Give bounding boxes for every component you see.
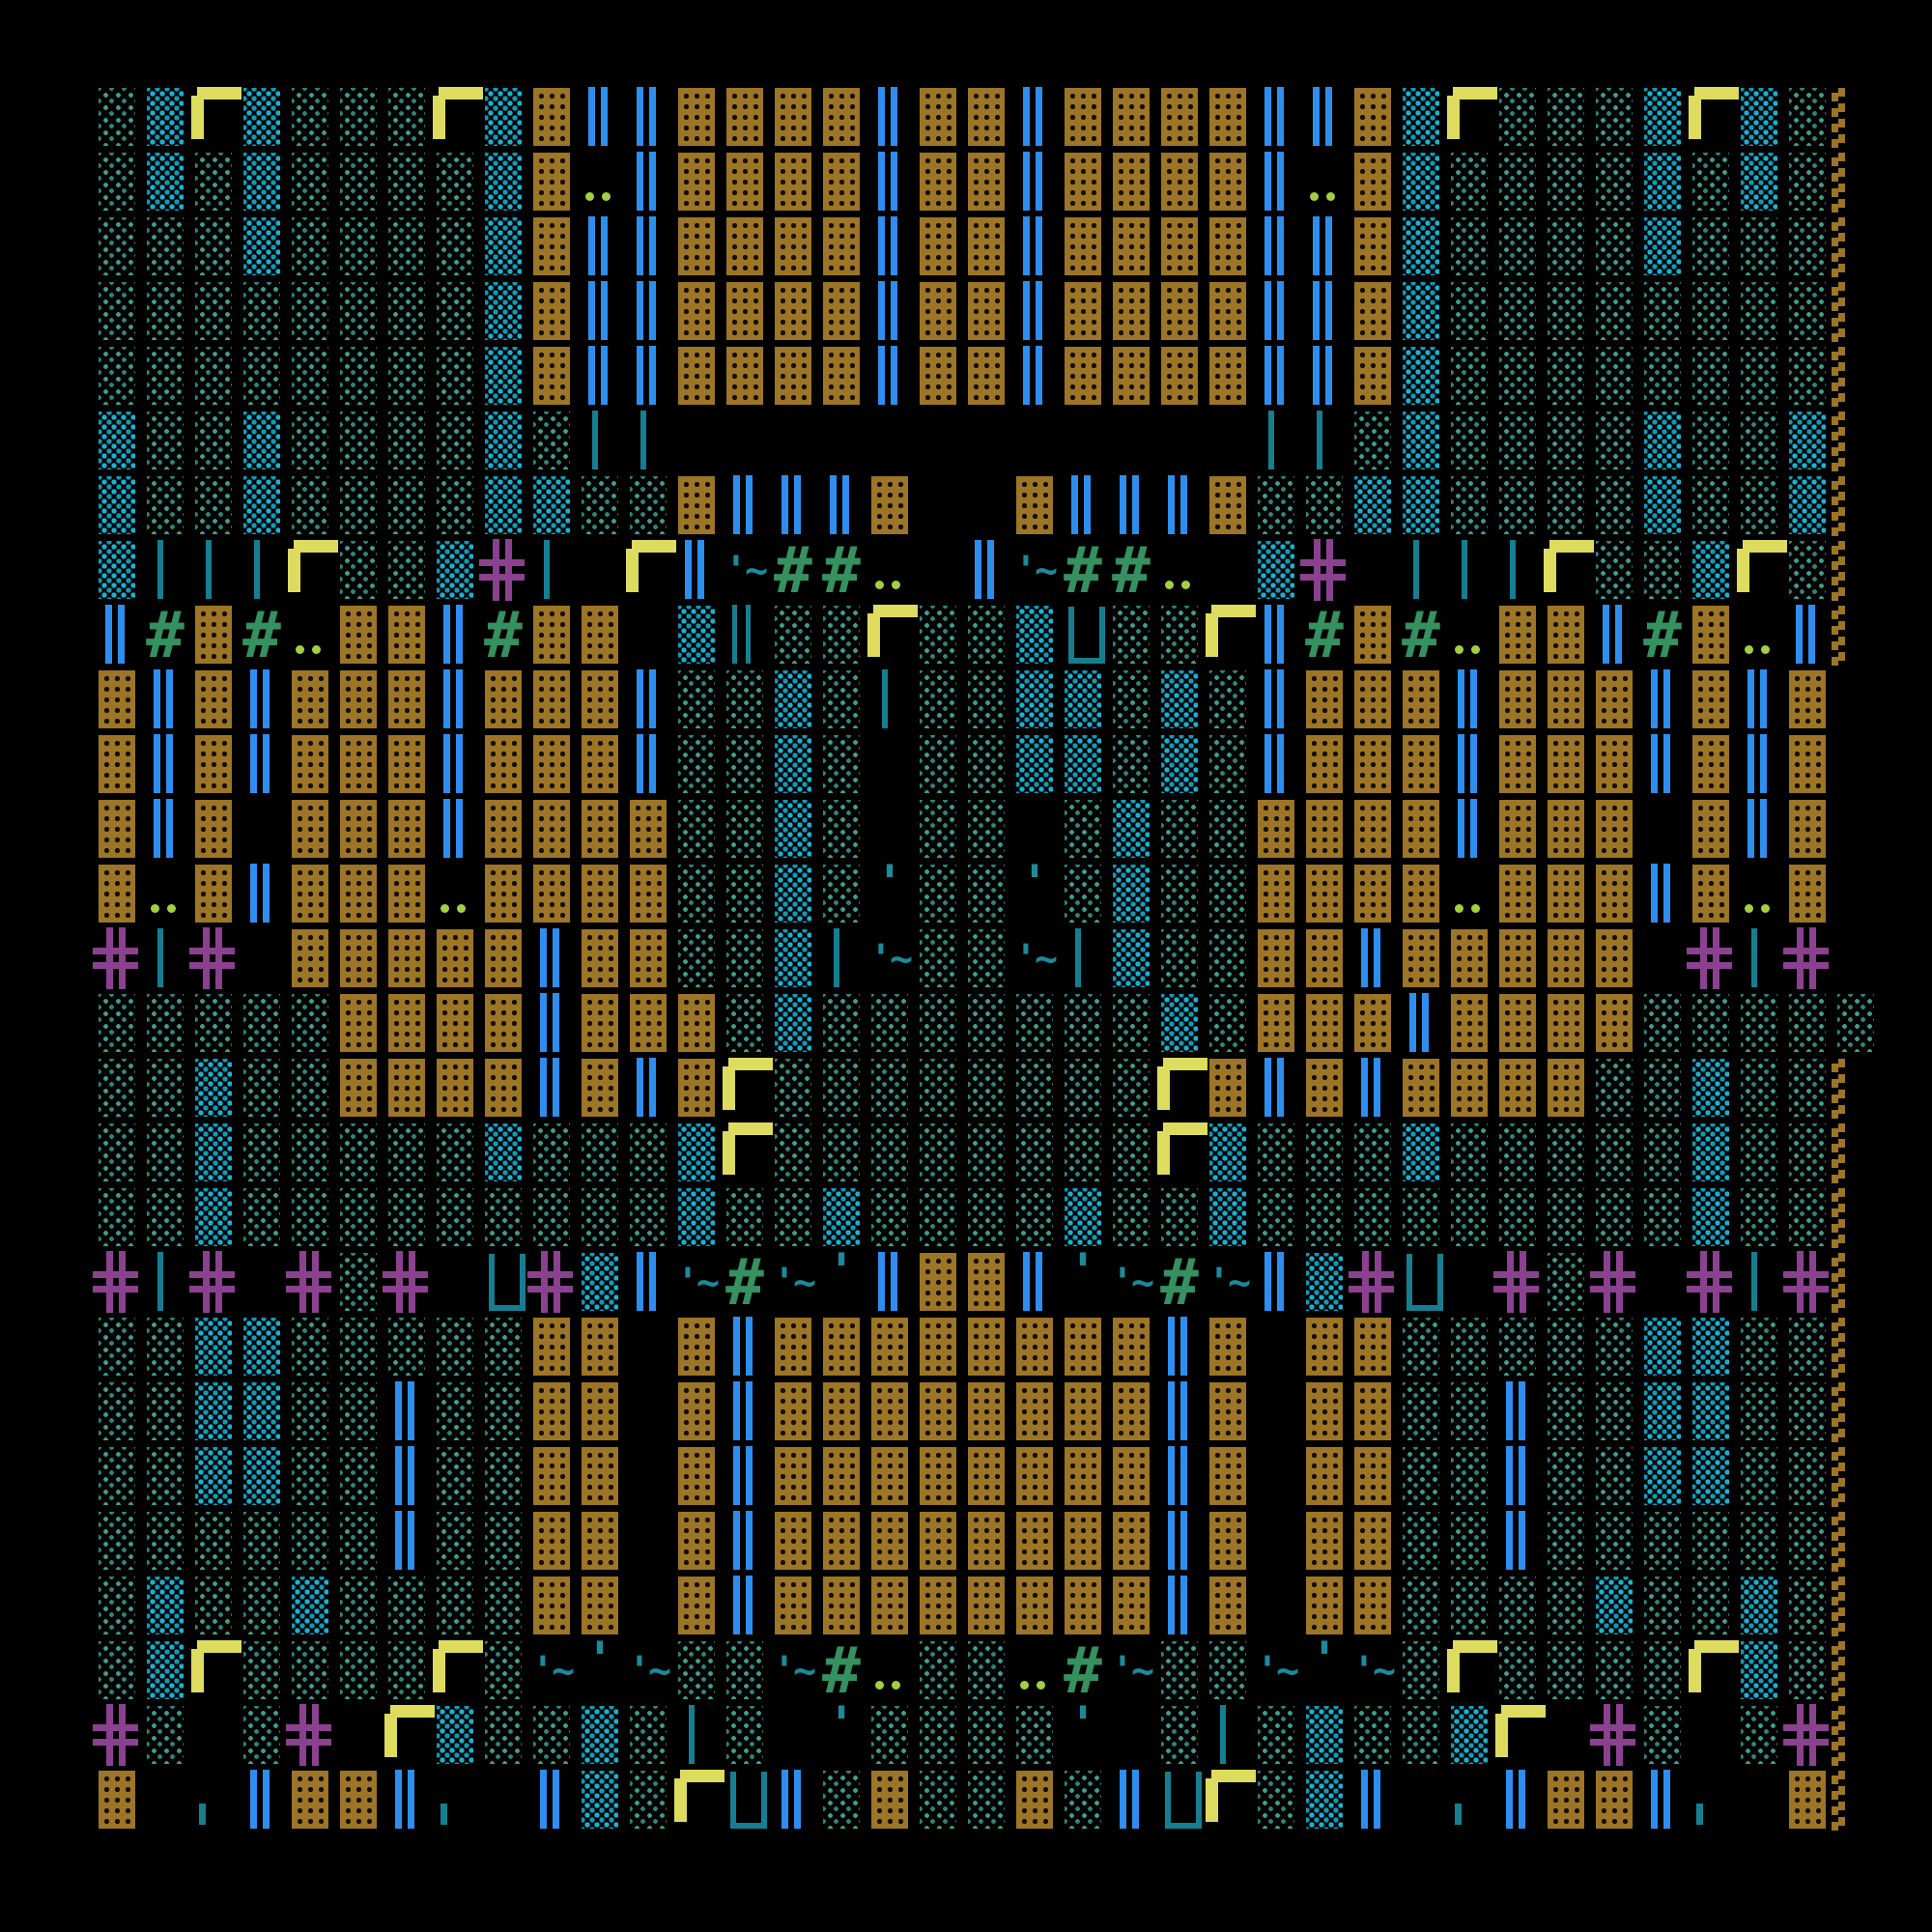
teal-dot-block bbox=[1397, 1574, 1445, 1638]
brown-dot-block bbox=[334, 797, 383, 862]
teal-dot-block-shape bbox=[1113, 670, 1150, 728]
yellow-corner-glyph bbox=[624, 538, 672, 603]
teal-dot-block bbox=[334, 1121, 383, 1185]
yellow-corner-glyph bbox=[721, 1121, 769, 1185]
brown-dot-block-shape bbox=[968, 1447, 1005, 1505]
brown-dot-block-shape bbox=[1354, 800, 1391, 858]
hash-glyph-shape: # bbox=[479, 603, 527, 668]
teal-dot-block bbox=[576, 1185, 624, 1250]
teal-bracket-glyph bbox=[1155, 1768, 1204, 1833]
blue-double-bar-glyph bbox=[1493, 1379, 1542, 1444]
blue-double-bar-glyph-shape bbox=[1349, 928, 1397, 987]
cyan-dot-block bbox=[141, 1638, 189, 1703]
brown-dot-block-shape bbox=[533, 1577, 570, 1634]
teal-dot-block bbox=[1735, 409, 1783, 473]
brown-dot-block-shape bbox=[1209, 1382, 1246, 1440]
cyan-dot-block-shape bbox=[1016, 735, 1053, 793]
cyan-dot-block bbox=[1687, 1185, 1735, 1250]
brown-dot-block bbox=[479, 668, 527, 732]
teal-bar-glyph-shape bbox=[817, 928, 866, 987]
brown-dot-block-shape bbox=[485, 800, 522, 858]
teal-dot-block-shape bbox=[99, 1188, 135, 1246]
brown-dot-block-shape bbox=[1692, 606, 1729, 664]
brown-dot-block bbox=[1107, 279, 1155, 344]
brown-dot-block-shape bbox=[968, 217, 1005, 275]
brown-dot-block bbox=[914, 1574, 962, 1638]
brown-dot-block bbox=[1349, 1509, 1397, 1574]
purple-cross-glyph bbox=[1783, 926, 1832, 991]
brown-dot-block-shape bbox=[1065, 282, 1101, 340]
teal-dot-block bbox=[769, 603, 817, 668]
brown-dot-block-shape bbox=[99, 865, 135, 923]
blue-double-bar-glyph-shape bbox=[672, 540, 721, 599]
cyan-dot-block-shape bbox=[582, 1253, 618, 1311]
blue-double-bar-glyph-shape bbox=[1735, 669, 1783, 728]
brown-dot-block-shape bbox=[1596, 735, 1633, 793]
brown-dot-block-shape bbox=[582, 865, 618, 923]
teal-dot-block-shape bbox=[99, 1382, 135, 1440]
brown-dot-block bbox=[286, 1768, 334, 1833]
teal-dot-block bbox=[334, 1444, 383, 1509]
hash-glyph: # bbox=[1300, 603, 1349, 668]
brown-dot-block bbox=[527, 1509, 576, 1574]
double-dot-glyph bbox=[1735, 603, 1783, 668]
teal-dot-block-shape bbox=[1741, 1188, 1777, 1246]
blue-double-bar-glyph bbox=[1735, 732, 1783, 797]
blue-double-bar-glyph-shape bbox=[431, 669, 479, 728]
brown-dot-block bbox=[1542, 1768, 1590, 1833]
teal-dot-block-shape bbox=[582, 1123, 618, 1181]
teal-dot-block-shape bbox=[1741, 347, 1777, 405]
brown-dot-block bbox=[93, 1768, 141, 1833]
brown-dot-block-shape bbox=[1306, 800, 1343, 858]
teal-dot-block bbox=[334, 473, 383, 538]
teal-dot-block-shape bbox=[292, 153, 328, 211]
hash-glyph-shape: # bbox=[1638, 603, 1687, 668]
hash-glyph-shape: # bbox=[1155, 1250, 1204, 1315]
brown-dot-block-shape bbox=[823, 1577, 860, 1634]
teal-dot-block-shape bbox=[99, 282, 135, 340]
blue-double-bar-glyph bbox=[1397, 991, 1445, 1056]
cyan-dot-block-shape bbox=[195, 1382, 232, 1440]
brown-dot-block-shape bbox=[871, 1382, 908, 1440]
brown-dot-block bbox=[1107, 1509, 1155, 1574]
teal-dot-block-shape bbox=[968, 865, 1005, 923]
cyan-dot-block-shape bbox=[1451, 1706, 1488, 1764]
blue-double-bar-glyph-shape bbox=[1155, 475, 1204, 534]
brown-serration-glyph-shape bbox=[1832, 1704, 1845, 1766]
brown-dot-block bbox=[576, 1056, 624, 1121]
brown-dot-block bbox=[527, 668, 576, 732]
teal-dot-block-shape bbox=[292, 476, 328, 534]
teal-dot-block bbox=[1542, 279, 1590, 344]
brown-dot-block bbox=[1542, 732, 1590, 797]
teal-dot-block-shape bbox=[1644, 282, 1681, 340]
apostrophe-tilde-glyph-shape: '~ bbox=[769, 1638, 817, 1703]
teal-bar-glyph bbox=[866, 668, 914, 732]
cyan-dot-block-shape bbox=[1692, 1382, 1729, 1440]
teal-dot-block-shape bbox=[437, 347, 473, 405]
teal-dot-block bbox=[721, 926, 769, 991]
teal-dot-block bbox=[1252, 1768, 1300, 1833]
blue-double-bar-glyph-shape bbox=[721, 1511, 769, 1570]
teal-dot-block-shape bbox=[1692, 153, 1729, 211]
cyan-dot-block bbox=[769, 926, 817, 991]
blue-double-bar-glyph-shape bbox=[1010, 216, 1059, 275]
teal-dot-block bbox=[238, 1185, 286, 1250]
teal-dot-block bbox=[1300, 473, 1349, 538]
teal-dot-block-shape bbox=[920, 670, 956, 728]
apostrophe-tilde-glyph-shape: '~ bbox=[769, 1250, 817, 1315]
teal-dot-block-shape bbox=[968, 1641, 1005, 1699]
teal-dot-block bbox=[93, 1638, 141, 1703]
cyan-dot-block-shape bbox=[195, 1059, 232, 1117]
teal-dot-block bbox=[721, 668, 769, 732]
teal-dot-block-shape bbox=[1692, 347, 1729, 405]
blue-double-bar-glyph bbox=[1059, 473, 1107, 538]
cyan-dot-block-shape bbox=[775, 994, 811, 1052]
cyan-dot-block-shape bbox=[243, 217, 280, 275]
brown-dot-block bbox=[769, 85, 817, 150]
teal-dot-block-shape bbox=[243, 1059, 280, 1117]
brown-dot-block bbox=[914, 1250, 962, 1315]
teal-dot-block bbox=[1687, 279, 1735, 344]
teal-dot-block-shape bbox=[99, 1123, 135, 1181]
brown-serration-glyph bbox=[1832, 1315, 1880, 1379]
blue-double-bar-glyph bbox=[721, 1574, 769, 1638]
teal-dot-block-shape bbox=[1548, 88, 1584, 146]
brown-dot-block bbox=[286, 732, 334, 797]
teal-dot-block bbox=[624, 1121, 672, 1185]
teal-bar-glyph-shape bbox=[141, 1252, 189, 1311]
teal-dot-block bbox=[334, 344, 383, 409]
blue-double-bar-glyph-shape bbox=[769, 1770, 817, 1829]
brown-dot-block-shape bbox=[485, 1059, 522, 1117]
cyan-dot-block-shape bbox=[485, 153, 522, 211]
cyan-dot-block bbox=[769, 797, 817, 862]
teal-dot-block-shape bbox=[823, 1771, 860, 1829]
brown-dot-block-shape bbox=[775, 1382, 811, 1440]
cyan-dot-block-shape bbox=[243, 1382, 280, 1440]
teal-dot-block bbox=[431, 279, 479, 344]
cyan-dot-block bbox=[93, 473, 141, 538]
teal-dot-block bbox=[286, 1056, 334, 1121]
teal-dot-block bbox=[962, 862, 1010, 926]
brown-dot-block bbox=[914, 344, 962, 409]
teal-dot-block-shape bbox=[1789, 1447, 1826, 1505]
blue-double-bar-glyph bbox=[624, 150, 672, 214]
teal-dot-block bbox=[866, 1056, 914, 1121]
teal-dot-block bbox=[1735, 1379, 1783, 1444]
brown-dot-block bbox=[866, 1768, 914, 1833]
teal-dot-block bbox=[238, 1574, 286, 1638]
brown-dot-block bbox=[962, 1574, 1010, 1638]
teal-dot-block-shape bbox=[1596, 1447, 1633, 1505]
brown-dot-block-shape bbox=[1161, 88, 1198, 146]
double-dot-glyph-shape bbox=[866, 1638, 914, 1703]
teal-dot-block-shape bbox=[1161, 1188, 1198, 1246]
blue-double-bar-glyph-shape bbox=[1349, 1058, 1397, 1117]
teal-bar-glyph bbox=[1735, 1250, 1783, 1315]
teal-dot-block bbox=[1445, 1574, 1493, 1638]
purple-cross-glyph-shape bbox=[1590, 1703, 1638, 1768]
hash-glyph-shape: # bbox=[1107, 538, 1155, 603]
hash-glyph-shape: # bbox=[769, 538, 817, 603]
teal-dot-block bbox=[1493, 1185, 1542, 1250]
blue-double-bar-glyph bbox=[238, 732, 286, 797]
cyan-dot-block-shape bbox=[1741, 153, 1777, 211]
teal-dot-block bbox=[1107, 991, 1155, 1056]
cyan-dot-block bbox=[1397, 85, 1445, 150]
teal-dot-block-shape bbox=[1306, 476, 1343, 534]
teal-dot-block-shape bbox=[1258, 1188, 1294, 1246]
brown-dot-block-shape bbox=[99, 670, 135, 728]
teal-dot-block bbox=[672, 797, 721, 862]
purple-cross-glyph bbox=[189, 1250, 238, 1315]
blue-double-bar-glyph-shape bbox=[817, 475, 866, 534]
teal-dot-block bbox=[1155, 797, 1204, 862]
teal-dot-block-shape bbox=[678, 929, 715, 987]
teal-dot-block-shape bbox=[920, 800, 956, 858]
teal-dot-block-shape bbox=[678, 670, 715, 728]
teal-dot-block bbox=[1493, 279, 1542, 344]
cyan-dot-block-shape bbox=[1161, 670, 1198, 728]
teal-dot-block-shape bbox=[533, 1188, 570, 1246]
blue-double-bar-glyph-shape bbox=[141, 669, 189, 728]
teal-dot-block-shape bbox=[195, 153, 232, 211]
teal-dot-block bbox=[1155, 603, 1204, 668]
brown-dot-block bbox=[866, 1379, 914, 1444]
teal-bar-glyph-shape bbox=[1059, 928, 1107, 987]
teal-bar-glyph-shape bbox=[141, 928, 189, 987]
teal-dot-block bbox=[189, 214, 238, 279]
teal-dot-block-shape bbox=[147, 476, 184, 534]
brown-serration-glyph bbox=[1832, 85, 1880, 150]
brown-dot-block-shape bbox=[1161, 153, 1198, 211]
brown-dot-block bbox=[1445, 1056, 1493, 1121]
teal-dot-block-shape bbox=[147, 1059, 184, 1117]
blue-double-bar-glyph-shape bbox=[1155, 1511, 1204, 1570]
teal-dot-block-shape bbox=[726, 1641, 763, 1699]
cyan-dot-block-shape bbox=[99, 412, 135, 469]
teal-dot-block-shape bbox=[1161, 1641, 1198, 1699]
teal-dot-block-shape bbox=[1692, 412, 1729, 469]
teal-dot-block-shape bbox=[920, 1123, 956, 1181]
brown-dot-block bbox=[962, 1379, 1010, 1444]
teal-dot-block bbox=[527, 1121, 576, 1185]
blue-double-bar-glyph-shape bbox=[866, 1252, 914, 1311]
blue-double-bar-glyph-shape bbox=[866, 281, 914, 340]
brown-dot-block-shape bbox=[582, 606, 618, 664]
brown-dot-block bbox=[1204, 1315, 1252, 1379]
brown-dot-block bbox=[383, 991, 431, 1056]
teal-dot-block-shape bbox=[775, 1059, 811, 1117]
brown-dot-block-shape bbox=[292, 929, 328, 987]
teal-dot-block-shape bbox=[195, 1577, 232, 1634]
brown-dot-block-shape bbox=[678, 1512, 715, 1570]
cyan-dot-block bbox=[1107, 926, 1155, 991]
teal-dot-block bbox=[1638, 1703, 1687, 1768]
teal-dot-block bbox=[1397, 1703, 1445, 1768]
teal-dot-block-shape bbox=[243, 994, 280, 1052]
cyan-dot-block-shape bbox=[1403, 412, 1439, 469]
brown-dot-block-shape bbox=[678, 1059, 715, 1117]
brown-dot-block-shape bbox=[726, 282, 763, 340]
blue-double-bar-glyph-shape bbox=[238, 864, 286, 923]
brown-dot-block bbox=[1542, 862, 1590, 926]
yellow-corner-glyph bbox=[1687, 1638, 1735, 1703]
teal-dot-block-shape bbox=[678, 735, 715, 793]
cyan-dot-block bbox=[238, 85, 286, 150]
hash-glyph-shape: # bbox=[817, 1638, 866, 1703]
teal-dot-block-shape bbox=[920, 994, 956, 1052]
brown-dot-block-shape bbox=[678, 1447, 715, 1505]
cyan-dot-block bbox=[1687, 1379, 1735, 1444]
brown-dot-block-shape bbox=[582, 670, 618, 728]
hash-glyph: # bbox=[721, 1250, 769, 1315]
brown-dot-block bbox=[431, 1056, 479, 1121]
brown-dot-block bbox=[1590, 1768, 1638, 1833]
purple-cross-glyph-shape bbox=[1783, 1703, 1832, 1768]
brown-dot-block-shape bbox=[582, 929, 618, 987]
brown-dot-block-shape bbox=[195, 865, 232, 923]
double-dot-glyph-shape bbox=[141, 862, 189, 926]
teal-dot-block bbox=[721, 862, 769, 926]
teal-dot-block bbox=[1735, 1185, 1783, 1250]
teal-dot-block-shape bbox=[968, 1123, 1005, 1181]
apostrophe-tilde-glyph: '~ bbox=[624, 1638, 672, 1703]
brown-dot-block bbox=[962, 1250, 1010, 1315]
hash-glyph: # bbox=[817, 1638, 866, 1703]
yellow-corner-glyph-shape bbox=[286, 538, 334, 603]
blue-double-bar-glyph-shape bbox=[1252, 734, 1300, 793]
teal-dot-block-shape bbox=[1499, 1318, 1536, 1376]
cyan-dot-block bbox=[1397, 344, 1445, 409]
teal-dot-block bbox=[1107, 1056, 1155, 1121]
brown-dot-block-shape bbox=[630, 929, 667, 987]
apostrophe-tilde-glyph: '~ bbox=[1107, 1250, 1155, 1315]
brown-dot-block-shape bbox=[1499, 670, 1536, 728]
cyan-dot-block bbox=[189, 1121, 238, 1185]
double-dot-glyph bbox=[1300, 150, 1349, 214]
hash-glyph-shape: # bbox=[817, 538, 866, 603]
teal-dot-block bbox=[1638, 1056, 1687, 1121]
brown-dot-block bbox=[527, 1315, 576, 1379]
teal-dot-block bbox=[914, 862, 962, 926]
teal-dot-block-shape bbox=[388, 1577, 425, 1634]
teal-dot-block bbox=[1397, 1444, 1445, 1509]
blue-double-bar-glyph bbox=[141, 668, 189, 732]
blue-double-bar-glyph-shape bbox=[1010, 346, 1059, 405]
brown-dot-block-shape bbox=[340, 800, 377, 858]
teal-dot-block bbox=[1010, 1121, 1059, 1185]
yellow-corner-glyph-shape bbox=[189, 85, 238, 150]
teal-dot-block-shape bbox=[1354, 1188, 1391, 1246]
brown-dot-block bbox=[624, 926, 672, 991]
brown-dot-block-shape bbox=[823, 1447, 860, 1505]
brown-dot-block bbox=[866, 1315, 914, 1379]
cyan-dot-block bbox=[672, 1121, 721, 1185]
cyan-dot-block-shape bbox=[678, 606, 715, 664]
cyan-dot-block bbox=[238, 409, 286, 473]
teal-dot-block-shape bbox=[1741, 1123, 1777, 1181]
teal-dot-block-shape bbox=[968, 1188, 1005, 1246]
hash-glyph: # bbox=[1059, 1638, 1107, 1703]
brown-dot-block bbox=[527, 1574, 576, 1638]
teal-dot-block-shape bbox=[1692, 476, 1729, 534]
teal-dot-block bbox=[1493, 473, 1542, 538]
cyan-dot-block-shape bbox=[243, 412, 280, 469]
brown-dot-block bbox=[1300, 797, 1349, 862]
brown-dot-block bbox=[1349, 344, 1397, 409]
teal-dot-block-shape bbox=[1596, 1059, 1633, 1117]
teal-dot-block-shape bbox=[485, 1706, 522, 1764]
cyan-dot-block-shape bbox=[1161, 994, 1198, 1052]
brown-dot-block bbox=[817, 1574, 866, 1638]
brown-dot-block bbox=[817, 85, 866, 150]
teal-dot-block-shape bbox=[340, 153, 377, 211]
teal-dot-block bbox=[1493, 1315, 1542, 1379]
brown-dot-block-shape bbox=[920, 347, 956, 405]
teal-dot-block-shape bbox=[1258, 1706, 1294, 1764]
brown-dot-block-shape bbox=[678, 1382, 715, 1440]
teal-dot-block bbox=[1590, 1444, 1638, 1509]
brown-dot-block-shape bbox=[678, 1318, 715, 1376]
brown-dot-block-shape bbox=[340, 1059, 377, 1117]
brown-dot-block-shape bbox=[99, 800, 135, 858]
cyan-dot-block bbox=[479, 279, 527, 344]
hash-glyph: # bbox=[1155, 1250, 1204, 1315]
purple-cross-glyph bbox=[479, 538, 527, 603]
teal-dot-block-shape bbox=[99, 1447, 135, 1505]
cyan-dot-block-shape bbox=[243, 88, 280, 146]
teal-dot-block bbox=[1542, 1509, 1590, 1574]
brown-dot-block-shape bbox=[533, 217, 570, 275]
teal-dot-block bbox=[479, 1703, 527, 1768]
brown-dot-block-shape bbox=[1016, 1447, 1053, 1505]
teal-dot-block bbox=[1445, 1444, 1493, 1509]
blue-double-bar-glyph-shape bbox=[238, 669, 286, 728]
brown-dot-block bbox=[721, 279, 769, 344]
hash-glyph: # bbox=[141, 603, 189, 668]
teal-dot-block-shape bbox=[1016, 1706, 1053, 1764]
teal-dot-block bbox=[1542, 473, 1590, 538]
brown-dot-block bbox=[914, 1379, 962, 1444]
brown-dot-block-shape bbox=[823, 217, 860, 275]
brown-dot-block bbox=[1155, 279, 1204, 344]
brown-dot-block-shape bbox=[1016, 1382, 1053, 1440]
brown-dot-block bbox=[1010, 1315, 1059, 1379]
teal-dot-block bbox=[383, 1315, 431, 1379]
brown-dot-block bbox=[817, 1315, 866, 1379]
teal-dot-block bbox=[672, 862, 721, 926]
brown-dot-block bbox=[672, 214, 721, 279]
teal-dot-block bbox=[1542, 1444, 1590, 1509]
brown-dot-block bbox=[1059, 1315, 1107, 1379]
teal-dot-block-shape bbox=[1451, 476, 1488, 534]
cyan-dot-block-shape bbox=[1741, 88, 1777, 146]
blue-double-bar-glyph-shape bbox=[238, 734, 286, 793]
blue-double-bar-glyph bbox=[238, 862, 286, 926]
double-dot-glyph bbox=[1445, 603, 1493, 668]
teal-dot-block-shape bbox=[726, 1188, 763, 1246]
brown-serration-glyph bbox=[1832, 1121, 1880, 1185]
teal-dot-block-shape bbox=[1789, 1577, 1826, 1634]
teal-dot-block-shape bbox=[388, 217, 425, 275]
cyan-dot-block bbox=[1735, 150, 1783, 214]
brown-dot-block-shape bbox=[1306, 1318, 1343, 1376]
brown-dot-block bbox=[1010, 1574, 1059, 1638]
